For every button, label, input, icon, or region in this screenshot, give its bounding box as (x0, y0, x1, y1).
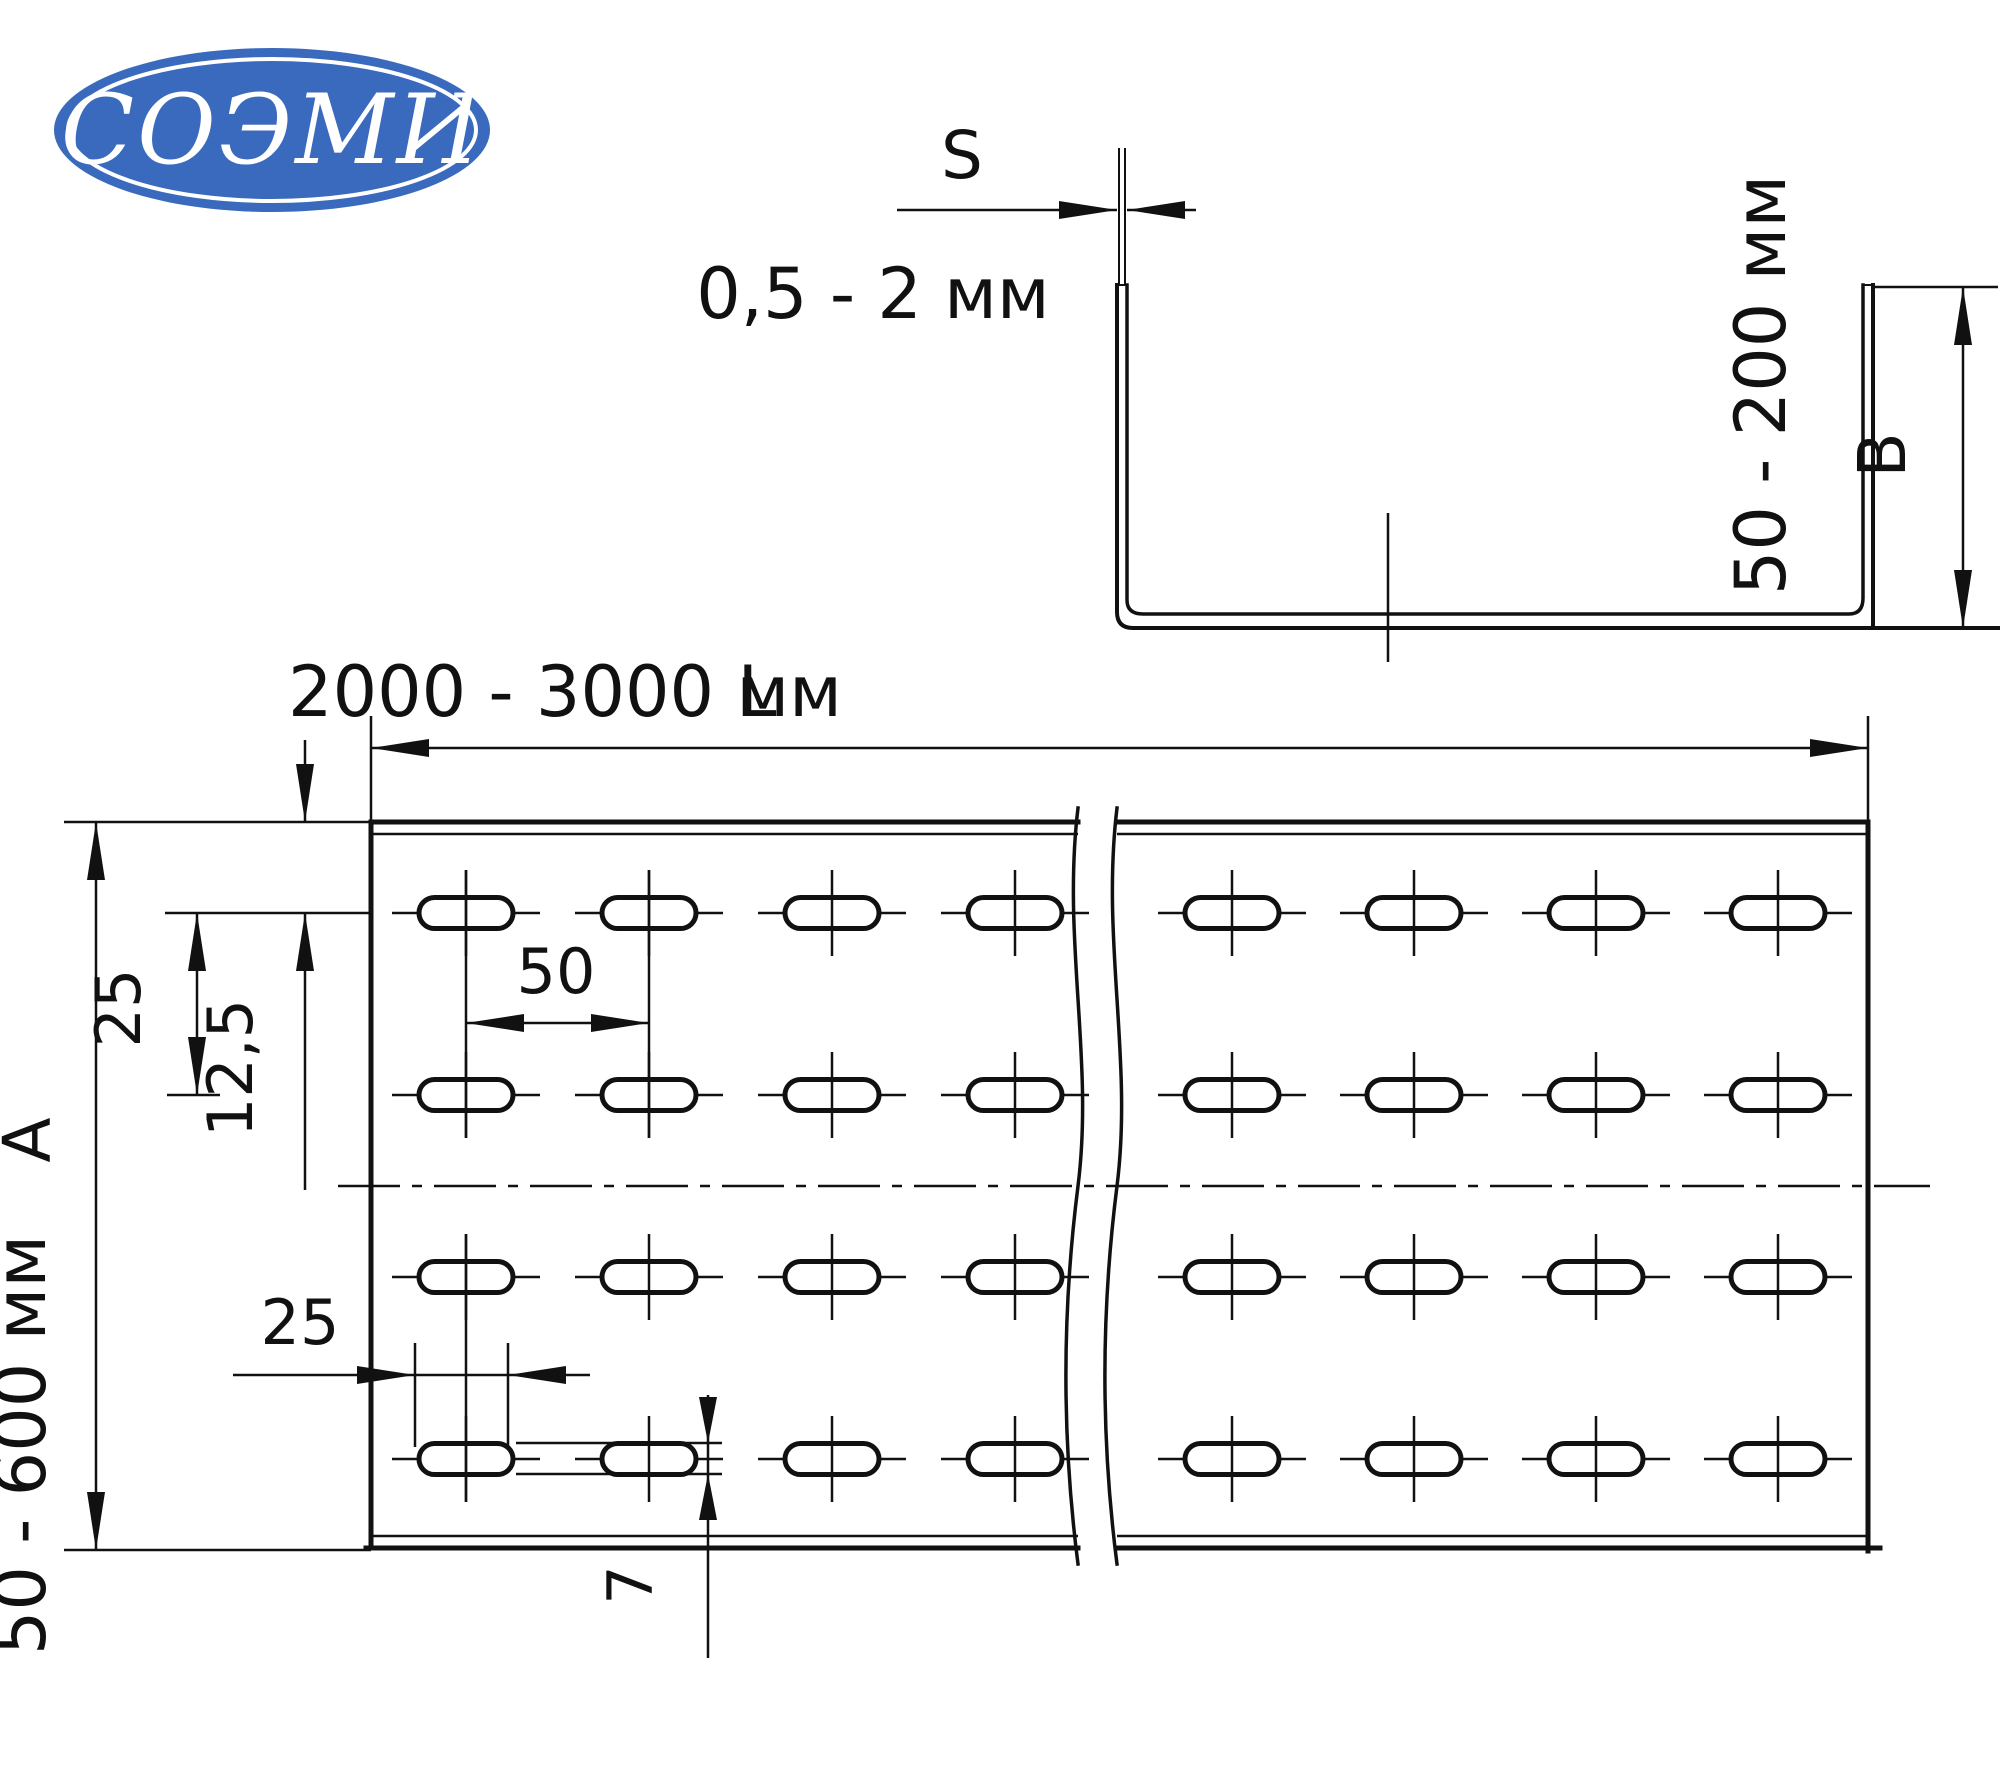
row-pitch-value: 25 (82, 969, 155, 1048)
arrowhead-right (357, 1366, 415, 1384)
dimension-l: 2000 - 3000 мм L (288, 651, 1868, 820)
cross-section-view: S 0,5 - 2 мм 50 - 200 мм B (696, 117, 1998, 662)
arrowhead-right (1810, 739, 1868, 757)
width-letter: А (0, 1117, 66, 1162)
height-letter: B (1844, 432, 1921, 477)
height-range: 50 - 200 мм (1720, 175, 1802, 595)
dimension-slot-length: 25 (233, 1286, 590, 1447)
arrowhead-left (371, 739, 429, 757)
thickness-letter: S (941, 117, 983, 194)
arrowhead-down (87, 1492, 105, 1550)
arrowhead-left (1127, 201, 1185, 219)
length-letter: L (738, 651, 777, 733)
dimension-edge-offset: 12,5 (194, 740, 314, 1190)
dimension-b: 50 - 200 мм B (1720, 175, 1998, 628)
edge-offset-value: 12,5 (194, 999, 267, 1137)
dimension-a: А 50 - 600 мм (0, 822, 371, 1655)
technical-drawing-cable-tray: СОЭМИ S 0,5 - 2 мм 50 - 200 мм (0, 0, 2000, 1771)
logo-text: СОЭМИ (61, 74, 484, 186)
arrowhead-down (296, 764, 314, 822)
slot-pitch-value: 50 (517, 935, 596, 1008)
arrowhead-right (591, 1014, 649, 1032)
arrowhead-up (1954, 287, 1972, 345)
plan-view: 2000 - 3000 мм L А 50 - 600 мм 25 (0, 651, 1930, 1658)
arrowhead-left (466, 1014, 524, 1032)
company-logo: СОЭМИ (54, 48, 490, 212)
dimension-s: S 0,5 - 2 мм (696, 117, 1196, 335)
arrowhead-left (508, 1366, 566, 1384)
dimension-slot-pitch: 50 (466, 935, 649, 1032)
arrowhead-down (1954, 570, 1972, 628)
arrowhead-up (87, 822, 105, 880)
arrowhead-up (296, 913, 314, 971)
arrowhead-up (188, 913, 206, 971)
width-range: 50 - 600 мм (0, 1235, 62, 1655)
slot-width-value: 7 (594, 1565, 667, 1604)
thickness-range: 0,5 - 2 мм (696, 253, 1050, 335)
arrowhead-up (699, 1474, 717, 1520)
arrowhead-down (699, 1397, 717, 1443)
dimension-slot-width: 7 (516, 1395, 722, 1658)
arrowhead-right (1059, 201, 1117, 219)
slot-length-value: 25 (261, 1286, 340, 1359)
